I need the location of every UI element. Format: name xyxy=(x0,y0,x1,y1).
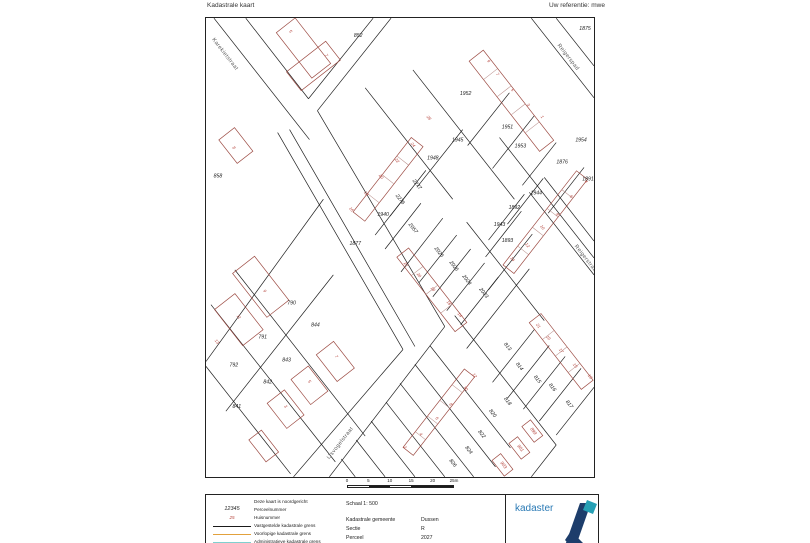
street-name: Reigerstraat xyxy=(573,244,594,275)
established-boundary-line-sample xyxy=(213,526,251,527)
scale-tick-label: 10 xyxy=(387,478,392,483)
cadastral-map: 8521875858195219511953195419451948187618… xyxy=(206,18,594,477)
house-number: 5 xyxy=(288,29,294,34)
house-number: 24 xyxy=(409,140,417,148)
parcel-number: 2025 xyxy=(447,259,459,273)
page-title: Kadastrale kaart xyxy=(207,2,254,9)
house-number: 1 xyxy=(540,114,545,119)
house-number: 19 xyxy=(545,334,552,341)
reference-label: Uw referentie: mwe xyxy=(549,2,605,9)
sectie-value: R xyxy=(421,526,425,532)
house-number: 5 xyxy=(307,379,313,384)
legend-administratieve-grens: Administratieve kadastrale grens xyxy=(254,539,321,543)
parcel-number: 2057 xyxy=(406,221,419,235)
parcel-number: 1892 xyxy=(509,205,521,211)
house-number: 7 xyxy=(334,354,340,359)
house-number: 9 xyxy=(262,288,268,293)
parcel-number: 817 xyxy=(564,399,575,410)
parcel-number-symbol: 12345 xyxy=(214,506,250,512)
parcel-number: 841 xyxy=(233,404,242,410)
legend-parcelnummer: Perceelnummer xyxy=(254,507,286,512)
house-number: 6 xyxy=(434,416,440,421)
house-number: 3 xyxy=(526,102,532,107)
parcel-number: 1944 xyxy=(531,190,543,196)
parcel-number: 790 xyxy=(287,301,296,307)
house-number: 22 xyxy=(393,156,401,164)
house-number: 12 xyxy=(524,242,531,249)
house-number: 21 xyxy=(534,322,541,330)
scale-tick-label: 25m xyxy=(450,478,459,483)
house-number: 16 xyxy=(348,206,355,213)
scale-tick-label: 15 xyxy=(409,478,414,483)
parcel-number: 820 xyxy=(487,408,497,419)
parcel-number: 815 xyxy=(532,374,542,385)
kadaster-wordmark: kadaster xyxy=(515,503,553,514)
legend-panel: Deze kaart is noordgericht 12345 Perceel… xyxy=(205,494,599,543)
house-number: 12 xyxy=(471,372,478,379)
map-info: Schaal 1: 500 Kadastrale gemeente Dussen… xyxy=(346,495,504,543)
parcel-number: 852 xyxy=(354,33,363,39)
parcel-number: 2026 xyxy=(432,245,444,259)
parcel-number: 1954 xyxy=(575,138,587,144)
house-number: 3 xyxy=(283,404,289,409)
buildings xyxy=(215,18,594,476)
house-number: 6 xyxy=(569,194,575,199)
scale-tick-label: 0 xyxy=(346,478,349,483)
parcel-number: 1893 xyxy=(502,238,514,244)
perceel-value: 2027 xyxy=(421,535,433,541)
parcel-number: 1952 xyxy=(460,91,472,97)
house-number: 16 xyxy=(446,299,453,306)
scale-tick-label: 5 xyxy=(367,478,370,483)
legend-huisnummer: Huisnummer xyxy=(254,515,280,520)
parcel-number: 818 xyxy=(502,396,512,407)
house-number: 22 xyxy=(402,260,410,268)
house-number: 9 xyxy=(486,59,492,64)
map-frame: 8521875858195219511953195419451948187618… xyxy=(205,17,595,478)
street-name: Karekietstraat xyxy=(210,37,239,72)
perceel-label: Perceel xyxy=(346,535,364,541)
preliminary-boundary-line-sample xyxy=(213,534,251,535)
parcel-number: 791 xyxy=(258,335,267,341)
parcel-number: 842 xyxy=(263,379,272,385)
parcel-number: 2024 xyxy=(460,273,472,287)
legend-vastgestelde-grens: Vastgestelde kadastrale grens xyxy=(254,523,315,528)
parcel-number: 1877 xyxy=(349,241,362,247)
parcel-number: 814 xyxy=(514,362,524,373)
parcel-boundaries xyxy=(206,18,594,477)
legend-voorlopige-grens: Voorlopige kadastrale grens xyxy=(254,531,311,536)
house-number: 7 xyxy=(324,53,330,58)
parcel-number: 2276 xyxy=(393,192,405,206)
parcel-number: 822 xyxy=(476,429,486,440)
scale-label: Schaal 1: 500 xyxy=(346,501,378,507)
house-number: 13 xyxy=(214,338,221,345)
parcel-number: 1945 xyxy=(452,138,464,144)
parcel-number: 844 xyxy=(311,323,320,329)
parcel-number: 1951 xyxy=(502,125,514,131)
scale-tick-label: 20 xyxy=(430,478,435,483)
house-number: 13 xyxy=(587,373,594,380)
parcel-number: 2277 xyxy=(410,178,423,192)
house-number: 7 xyxy=(495,72,501,77)
street-name: Reigerspad xyxy=(556,43,580,72)
gemeente-label: Kadastrale gemeente xyxy=(346,517,395,523)
north-note: Deze kaart is noordgericht xyxy=(254,499,308,504)
gemeente-value: Dussen xyxy=(421,517,439,523)
scale-bar-segments xyxy=(347,485,454,488)
parcel-number: 824 xyxy=(463,445,473,456)
house-number: 26 xyxy=(425,114,433,122)
parcel-number: 1943 xyxy=(494,222,506,228)
sectie-label: Sectie xyxy=(346,526,360,532)
parcel-number: 858 xyxy=(214,173,223,179)
parcel-number: 843 xyxy=(282,357,291,363)
house-number-symbol: 25 xyxy=(214,515,250,520)
parcel-number: 1948 xyxy=(427,155,439,161)
parcel-number: 1875 xyxy=(579,26,591,32)
street-name: IJsvogelstraat xyxy=(326,426,355,461)
house-number: 10 xyxy=(539,224,546,231)
parcel-number: 826 xyxy=(448,458,458,469)
parcel-number: 1953 xyxy=(515,144,527,150)
parcel-number: 2023 xyxy=(477,286,489,300)
parcel-number: 1876 xyxy=(556,159,568,165)
house-number: 15 xyxy=(572,362,579,369)
kadaster-logo-area: kadaster xyxy=(505,495,600,543)
cadastral-map-page: Kadastrale kaart Uw referentie: mwe xyxy=(0,0,810,543)
house-number: 8 xyxy=(231,145,237,150)
parcel-number: 816 xyxy=(547,382,557,393)
parcel-number: 792 xyxy=(230,362,239,368)
kadaster-k-icon xyxy=(558,499,598,543)
parcel-number: 813 xyxy=(502,342,512,353)
parcel-number: 1940 xyxy=(377,212,389,218)
scale-bar: 0510152025m xyxy=(347,478,457,492)
